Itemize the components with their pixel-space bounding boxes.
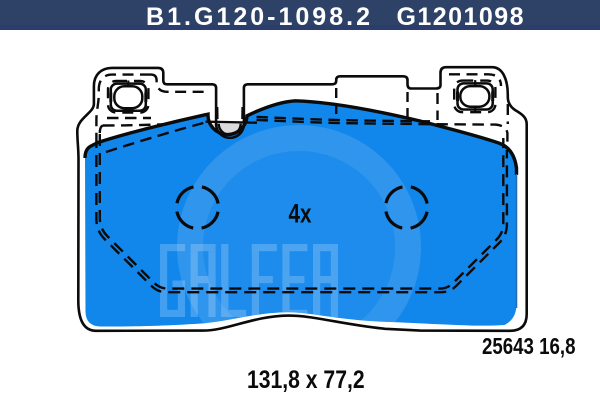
svg-text:25643 16,8: 25643 16,8 <box>482 333 576 359</box>
svg-text:131,8 x 77,2: 131,8 x 77,2 <box>247 367 365 394</box>
svg-text:G1201098: G1201098 <box>397 3 524 31</box>
svg-text:4x: 4x <box>289 199 312 229</box>
svg-text:B1.G120-1098.2: B1.G120-1098.2 <box>146 3 370 31</box>
